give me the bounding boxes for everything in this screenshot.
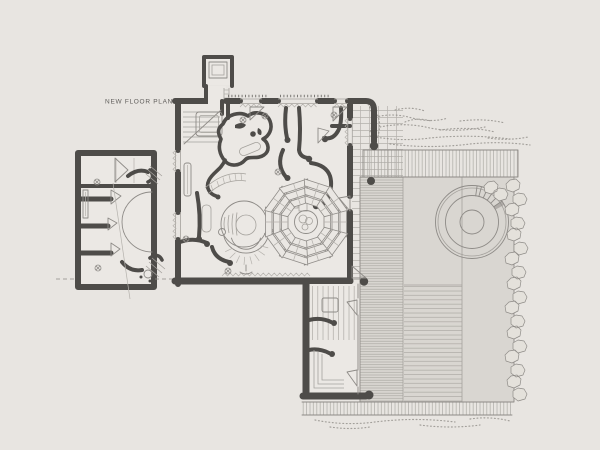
boardwalk-strip [360, 177, 403, 402]
main-hall [173, 96, 378, 286]
plan-title: NEW FLOOR PLAN [105, 99, 173, 106]
timber-deck [404, 285, 462, 402]
south-fence [302, 402, 512, 415]
floor-plan-svg: NEW FLOOR PLAN [0, 0, 600, 450]
annex-left-wing [56, 153, 176, 299]
north-fence [363, 150, 518, 177]
floor-plan-canvas: NEW FLOOR PLAN [0, 0, 600, 450]
wing-floor-boards [312, 286, 357, 340]
wall-end-bulb [367, 177, 375, 185]
planting-bottom [315, 418, 510, 429]
